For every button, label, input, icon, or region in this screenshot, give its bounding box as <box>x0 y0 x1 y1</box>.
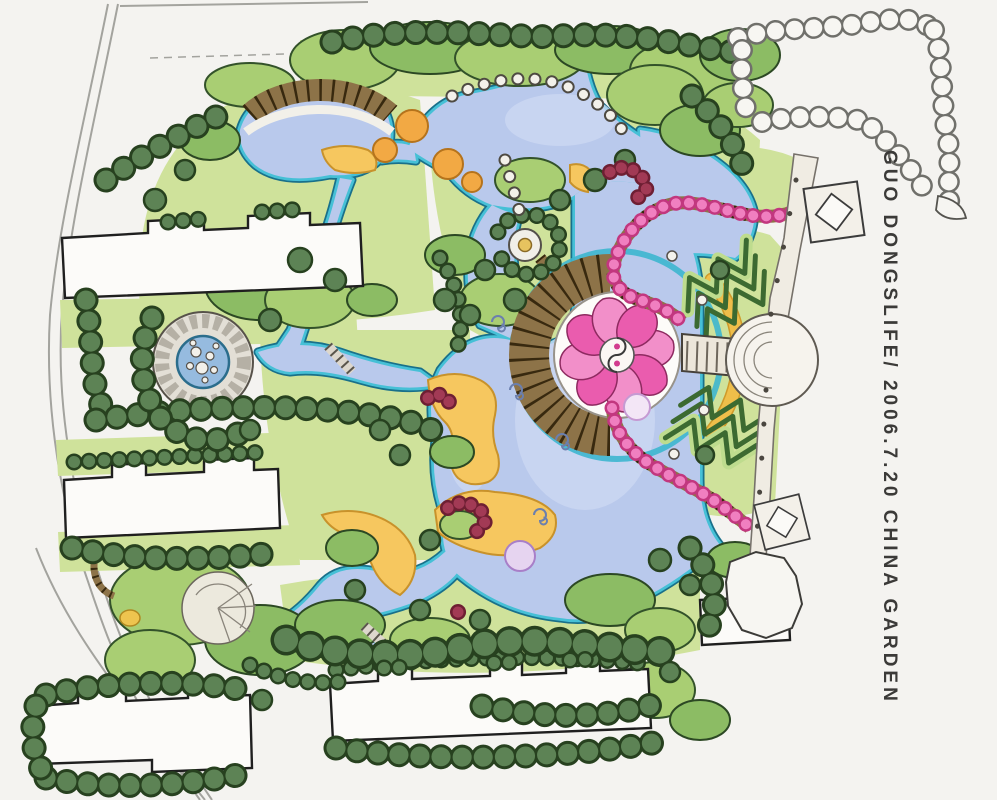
entrance-gate-north <box>804 182 865 243</box>
moon-terrace <box>726 314 818 406</box>
entrance-gate-south <box>754 494 810 550</box>
masterplan-drawing: GUO DONGSLIFE/ 2006.7.20 CHINA GARDEN <box>0 0 997 800</box>
plan-caption: GUO DONGSLIFE/ 2006.7.20 CHINA GARDEN <box>879 150 900 705</box>
garden-masterplan-canvas: GUO DONGSLIFE/ 2006.7.20 CHINA GARDEN <box>0 0 997 800</box>
